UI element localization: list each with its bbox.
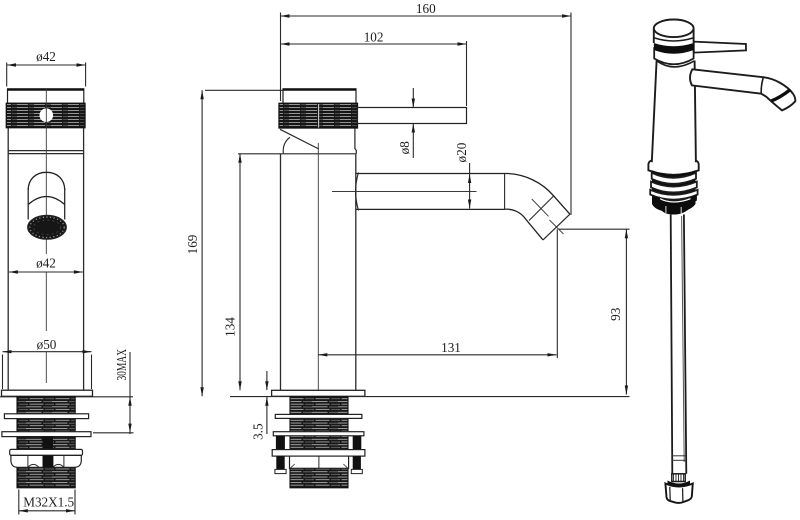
svg-text:131: 131 <box>441 340 461 355</box>
svg-text:169: 169 <box>185 234 200 254</box>
svg-text:30MAX: 30MAX <box>115 349 130 381</box>
svg-text:134: 134 <box>222 317 237 337</box>
svg-text:ø8: ø8 <box>397 141 412 155</box>
svg-text:ø42: ø42 <box>36 49 56 64</box>
svg-text:102: 102 <box>364 29 384 44</box>
svg-text:ø20: ø20 <box>454 142 469 162</box>
svg-text:3.5: 3.5 <box>251 423 266 440</box>
svg-text:ø50: ø50 <box>37 337 57 352</box>
svg-text:ø42: ø42 <box>36 256 56 271</box>
svg-text:160: 160 <box>416 1 436 16</box>
svg-text:M32X1.5: M32X1.5 <box>23 495 74 510</box>
svg-text:93: 93 <box>608 307 623 321</box>
